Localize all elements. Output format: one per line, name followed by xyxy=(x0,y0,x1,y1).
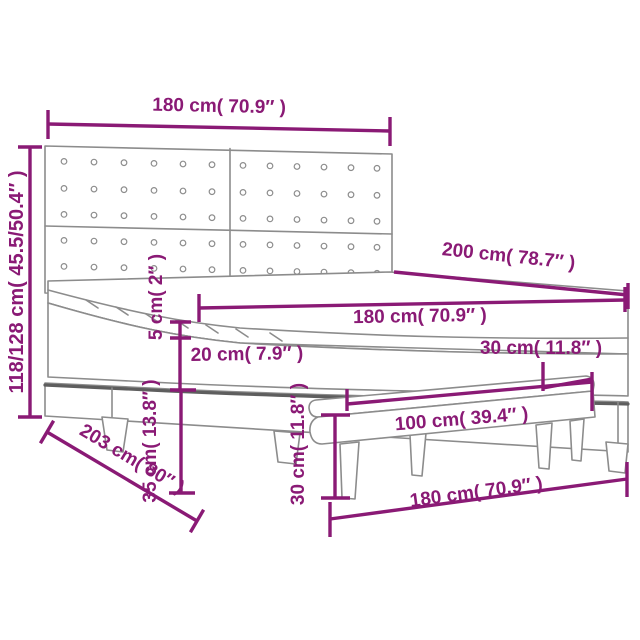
bench-leg-back-right xyxy=(570,419,584,461)
headboard-button xyxy=(267,163,273,169)
dim-headboard-height: 118/128 cm( 45.5/50.4″ ) xyxy=(6,147,42,417)
headboard-button xyxy=(267,216,273,222)
headboard-button xyxy=(91,264,97,270)
headboard-button xyxy=(294,191,300,197)
bench-leg-back-left xyxy=(410,433,426,476)
headboard-button xyxy=(294,164,300,170)
headboard-button xyxy=(267,268,273,274)
headboard-button xyxy=(374,219,380,225)
headboard-button xyxy=(209,162,215,168)
dim-label-topper-height: 5 cm( 2″ ) xyxy=(146,254,167,340)
headboard-button xyxy=(209,241,215,247)
headboard-button xyxy=(374,245,380,251)
headboard-button xyxy=(151,240,157,246)
headboard-button xyxy=(294,217,300,223)
headboard-button xyxy=(121,239,127,245)
dim-label-frame-width: 180 cm( 70.9″ ) xyxy=(409,473,544,512)
bench-leg-front-right xyxy=(536,423,552,469)
dim-label-bed-width: 180 cm( 70.9″ ) xyxy=(353,305,487,328)
headboard-button xyxy=(61,186,67,192)
headboard-button xyxy=(209,267,215,273)
bed-leg-right xyxy=(606,442,628,473)
dim-label-bed-length: 200 cm( 78.7″ ) xyxy=(441,239,576,274)
headboard-button xyxy=(348,192,354,198)
headboard-button xyxy=(240,163,246,169)
dimension-diagram-svg: 180 cm( 70.9″ ) 118/128 cm( 45.5/50.4″ )… xyxy=(0,0,640,640)
dim-frame-width: 180 cm( 70.9″ ) xyxy=(330,462,627,537)
headboard-button xyxy=(180,161,186,167)
headboard-button xyxy=(209,215,215,221)
headboard-button xyxy=(267,190,273,196)
headboard-button xyxy=(121,160,127,166)
headboard-button xyxy=(294,269,300,275)
headboard-button xyxy=(180,214,186,220)
headboard-button xyxy=(240,216,246,222)
headboard-button xyxy=(180,240,186,246)
headboard-button xyxy=(151,188,157,194)
headboard-button xyxy=(348,218,354,224)
headboard-button xyxy=(151,161,157,167)
headboard-button xyxy=(121,187,127,193)
dim-label-bench-height: 30 cm( 11.8″ ) xyxy=(288,383,309,505)
headboard-button xyxy=(151,214,157,220)
headboard-button xyxy=(267,242,273,248)
headboard-button xyxy=(121,265,127,271)
headboard-button xyxy=(61,238,67,244)
headboard-button xyxy=(180,188,186,194)
headboard-button xyxy=(321,243,327,249)
headboard-button xyxy=(321,191,327,197)
headboard-button xyxy=(374,193,380,199)
headboard-button xyxy=(294,243,300,249)
dim-label-headboard-height: 118/128 cm( 45.5/50.4″ ) xyxy=(6,170,28,393)
dim-label-mattress-height: 20 cm( 7.9″ ) xyxy=(190,343,303,366)
headboard-button xyxy=(91,212,97,218)
bench-leg-front-left xyxy=(340,442,359,499)
dim-label-headboard-width: 180 cm( 70.9″ ) xyxy=(152,95,286,119)
headboard-button xyxy=(321,217,327,223)
headboard-button xyxy=(209,189,215,195)
mattress-stack xyxy=(48,272,628,396)
headboard-button xyxy=(348,244,354,250)
headboard-button xyxy=(91,186,97,192)
dim-label-bench-depth: 30 cm( 11.8″ ) xyxy=(480,338,602,359)
headboard-button xyxy=(321,164,327,170)
headboard-button xyxy=(240,190,246,196)
headboard-button xyxy=(61,212,67,218)
headboard-button xyxy=(61,159,67,165)
headboard-button xyxy=(374,166,380,172)
headboard-button xyxy=(121,213,127,219)
headboard-button xyxy=(91,159,97,165)
headboard-button xyxy=(91,238,97,244)
headboard-button xyxy=(348,165,354,171)
headboard-button xyxy=(180,266,186,272)
headboard-button xyxy=(240,242,246,248)
headboard-button xyxy=(240,268,246,274)
headboard-button xyxy=(61,264,67,270)
dimension-diagram: 180 cm( 70.9″ ) 118/128 cm( 45.5/50.4″ )… xyxy=(0,0,640,640)
dim-headboard-width: 180 cm( 70.9″ ) xyxy=(48,95,390,146)
